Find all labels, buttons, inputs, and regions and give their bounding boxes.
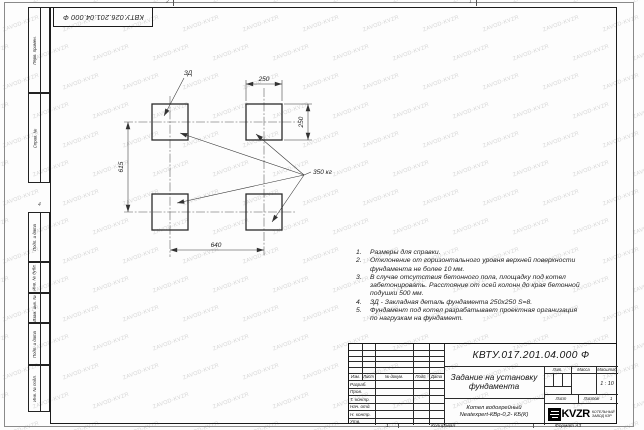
bottom-mark: 1 — [386, 424, 389, 429]
margin-stamp-inv-replace: Взам. инв. № — [28, 293, 50, 323]
margin-stamp-inv-original: Инв. № подл. — [28, 365, 50, 412]
fold-tick — [398, 424, 399, 428]
note-item: 2. Отклонение от горизонтального уровня … — [352, 257, 618, 274]
copied-by-label: Копировал — [408, 424, 478, 429]
margin-stamp-label: Инв. № подл. — [29, 366, 40, 411]
note-number: 4. — [352, 299, 370, 307]
title-block: Изм. Лист № докум. Подп. Дата Разраб. Пр… — [348, 343, 617, 424]
margin-stamp-inv-duplicate: Инв. № дубл. — [28, 262, 50, 293]
product-name: Котел водогрейный Neatexpert-КВр-0,2- КБ… — [444, 398, 544, 425]
fold-tick — [533, 424, 534, 428]
sheets-value: 1 — [610, 396, 612, 401]
corner-doc-code-stamp: КВТУ.026.201.04.000 Ф — [53, 7, 153, 27]
row-label-developed: Разраб. — [350, 381, 375, 389]
kvzr-logo-text: KVZR — [562, 408, 590, 420]
scale-value: 1 : 10 — [596, 373, 618, 394]
note-text: ЗД - Закладная деталь фундамента 250х250… — [370, 299, 586, 307]
note-number: 3. — [352, 274, 370, 299]
note-item: 5. Фундамент под котел разрабатывает про… — [352, 307, 618, 324]
mass-header: Масса — [571, 366, 596, 373]
fold-tick — [173, 0, 174, 6]
note-item: 4. ЗД - Закладная деталь фундамента 250х… — [352, 299, 618, 307]
col-header-sign: Подп. — [413, 373, 429, 380]
note-number: 2. — [352, 257, 370, 274]
company-name: КОТЕЛЬНЫЙ ЗАВОД КЗР — [592, 410, 615, 419]
margin-stamp-reference-number: Справ. № — [28, 93, 50, 183]
zone-mark: 1 — [469, 0, 472, 5]
col-header-date: Дата — [429, 373, 444, 380]
note-text: Фундамент под котел разрабатывает проект… — [370, 307, 586, 324]
note-text: Отклонение от горизонтального уровня вер… — [370, 257, 586, 274]
divider — [40, 213, 41, 261]
margin-stamp-label: Подп. и дата — [29, 213, 40, 261]
kvzr-logo-icon — [548, 408, 561, 421]
company-cell: KVZR КОТЕЛЬНЫЙ ЗАВОД КЗР — [544, 403, 618, 425]
note-number: 1. — [352, 249, 370, 257]
margin-stamp-label: Инв. № дубл. — [29, 263, 40, 292]
sheets-label: Листов — [584, 396, 599, 401]
margin-stamp-label: Справ. № — [29, 94, 40, 182]
margin-stamp-sign-date-1: Подп. и дата — [28, 212, 50, 262]
col-header-doc: № докум. — [375, 373, 413, 380]
row-label-approved: Утв. — [350, 418, 375, 426]
drawing-title: Задание на установку фундамента — [444, 366, 544, 398]
sheets-cell: Листов 1 — [578, 394, 618, 403]
note-text: В случае отсутствия бетонного пола, площ… — [370, 274, 586, 299]
col-header-izm: Изм. — [349, 373, 362, 380]
note-number: 5. — [352, 307, 370, 324]
scale-header: Масштаб — [596, 366, 618, 373]
note-item: 3. В случае отсутствия бетонного пола, п… — [352, 274, 618, 299]
col-header-list: Лист — [362, 373, 375, 380]
zone-mark-left: 4 — [38, 202, 41, 208]
sheet-label: Лист — [544, 394, 578, 403]
drawing-sheet: ZAVOD-KVZRZAVOD-KVZRZAVOD-KVZRZAVOD-KVZR… — [0, 0, 644, 430]
row-label-ncontrol: Н. контр. — [350, 411, 375, 419]
margin-stamp-label: Перв. примен. — [29, 8, 40, 92]
row-label-tcontrol: Т. контр. — [350, 396, 375, 404]
zone-mark: 2 — [166, 0, 169, 5]
margin-stamp-label: Подп. и дата — [29, 324, 40, 364]
fold-tick — [476, 0, 477, 6]
drawing-title-line2: фундамента — [469, 382, 519, 392]
row-label-dept-head: Нач. отд. — [350, 403, 375, 411]
product-name-line2: Neatexpert-КВр-0,2- КБ(К) — [460, 412, 529, 419]
divider — [40, 94, 41, 182]
doc-number: КВТУ.017.201.04.000 Ф — [444, 344, 618, 366]
row-label-checked: Пров. — [350, 388, 375, 396]
lit-header: Лит. — [544, 366, 571, 373]
margin-stamp-label: Взам. инв. № — [29, 294, 40, 322]
product-name-line1: Котел водогрейный — [466, 405, 521, 412]
format-label: Формат А3 — [538, 424, 598, 429]
divider — [40, 366, 41, 411]
divider — [40, 294, 41, 322]
margin-stamp-first-application: Перв. примен. — [28, 7, 50, 93]
margin-stamp-sign-date-2: Подп. и дата — [28, 323, 50, 365]
divider — [40, 324, 41, 364]
notes-block: 1. Размеры для справки. 2. Отклонение от… — [352, 249, 618, 324]
drawing-title-line1: Задание на установку — [451, 373, 538, 383]
divider — [40, 263, 41, 292]
corner-doc-code: КВТУ.026.201.04.000 Ф — [63, 13, 144, 22]
divider — [40, 8, 41, 92]
